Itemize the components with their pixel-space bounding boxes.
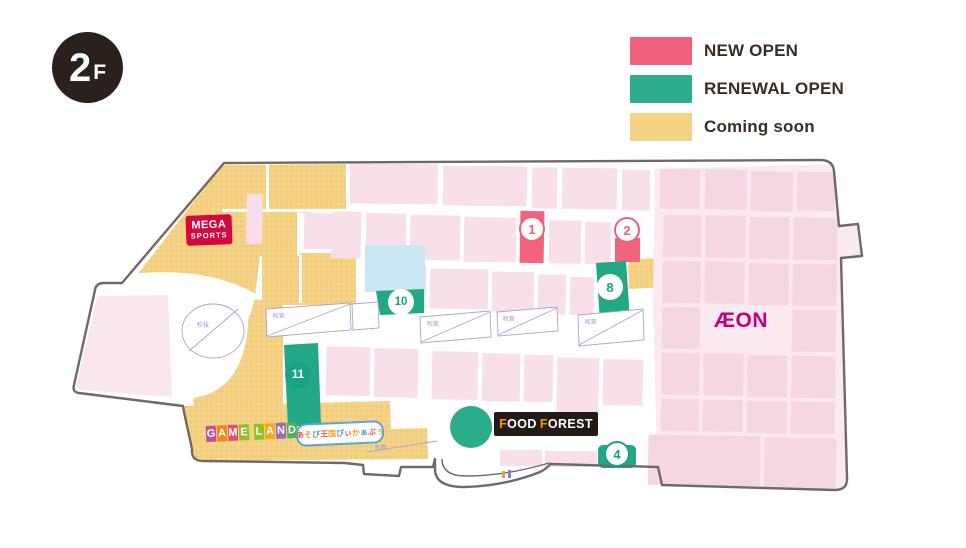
shop-block (797, 172, 836, 212)
shop-block (791, 402, 835, 435)
shop-block (492, 272, 535, 313)
shop-block (443, 165, 527, 206)
shop-block (562, 168, 617, 210)
shop-block (791, 356, 836, 399)
bridge-mark-blue (508, 470, 511, 478)
floor-map-page: 吹抜 吹抜 吹抜 吹抜 吹抜 吹抜 2 F NEW OPEN RENEWAL O… (0, 0, 966, 548)
bridge-mark-orange (502, 471, 505, 478)
legend-item-renewal-open: RENEWAL OPEN (630, 75, 844, 103)
void-label: 吹抜 (197, 321, 209, 329)
shop-block (350, 163, 438, 204)
game-land-letter: M (228, 425, 239, 441)
gold-grid-line (266, 164, 269, 211)
shop-block (747, 401, 787, 434)
shop-block (703, 353, 744, 396)
mega-sports-logo[interactable]: MEGA SPORTS (185, 214, 232, 246)
escalator-box-small (352, 302, 379, 330)
shop-block (570, 277, 595, 315)
marker-4[interactable]: 4 (604, 441, 630, 467)
shop-block (246, 194, 263, 244)
shop-block (662, 261, 701, 304)
shop-block (532, 167, 557, 208)
gold-grid-line (299, 255, 302, 303)
area-coming-soon-mid-block[interactable] (262, 253, 356, 305)
legend-swatch-coming-soon (630, 113, 692, 141)
shop-band-top (350, 163, 650, 210)
shop-block (524, 355, 554, 402)
food-court-circle[interactable] (450, 406, 492, 448)
food-forest-logo[interactable]: FOODFOREST (494, 412, 598, 436)
shop-block (662, 307, 701, 350)
shop-block (464, 217, 517, 263)
marker-1[interactable]: 1 (519, 216, 545, 242)
floor-suffix: F (93, 62, 106, 83)
shop-block (663, 215, 702, 258)
shop-block (764, 437, 837, 488)
shop-block (660, 169, 701, 210)
shop-block (304, 213, 345, 250)
shop-block (747, 355, 788, 398)
marker-2[interactable]: 2 (614, 217, 640, 243)
legend-swatch-renewal-open (630, 75, 692, 103)
shop-block (792, 264, 837, 307)
asobi-char: ぅ (376, 428, 384, 436)
marker-8[interactable]: 8 (597, 274, 623, 300)
shop-block (622, 169, 650, 210)
shop-block (430, 268, 489, 309)
shop-block (326, 346, 371, 396)
shop-block (751, 171, 794, 212)
food-forest-f2: F (540, 417, 548, 431)
game-land-letter: G (206, 426, 217, 442)
shop-block (585, 222, 612, 264)
marker-11[interactable]: 11 (285, 362, 311, 388)
gold-grid-line (222, 209, 346, 212)
legend-label-new-open: NEW OPEN (704, 41, 798, 61)
shop-block (704, 261, 745, 304)
shop-block (500, 450, 542, 466)
shop-block (661, 399, 699, 432)
asobi-oukoku-logo[interactable]: あ そ び 王 国 ぴ ぃ か ぁ ぶ ぅ (296, 420, 385, 447)
gold-grid-line (297, 212, 300, 256)
shop-block (374, 348, 419, 398)
aeon-logo[interactable]: ÆON (703, 309, 779, 333)
food-forest-ood: OOD (507, 417, 537, 431)
floor-number: 2 (69, 48, 91, 88)
floor-badge: 2 F (52, 32, 123, 103)
water-feature-blue (365, 245, 425, 292)
shop-block (749, 217, 790, 260)
legend-label-coming-soon: Coming soon (704, 117, 815, 137)
shop-block (705, 169, 748, 210)
shop-block (648, 435, 761, 487)
game-land-letter: E (239, 424, 250, 440)
marker-10[interactable]: 10 (388, 289, 414, 315)
game-land-letter: A (217, 425, 228, 441)
food-forest-orest: OREST (548, 417, 593, 431)
legend-label-renewal-open: RENEWAL OPEN (704, 79, 844, 99)
legend-item-coming-soon: Coming soon (630, 113, 844, 141)
legend: NEW OPEN RENEWAL OPEN Coming soon (630, 37, 844, 151)
shop-block (432, 351, 479, 400)
game-land-letter: L (254, 423, 265, 439)
shop-block (792, 310, 837, 353)
shop-block (549, 220, 582, 264)
game-land-letter: A (265, 423, 276, 439)
food-forest-f1: F (499, 417, 507, 431)
shop-block (661, 353, 700, 396)
mega-sports-line2: SPORTS (191, 232, 228, 241)
shop-block (793, 218, 838, 261)
shop-block (748, 263, 789, 306)
legend-item-new-open: NEW OPEN (630, 37, 844, 65)
shop-block (482, 353, 521, 402)
shop-block (602, 359, 643, 406)
game-land-letter: N (276, 423, 287, 439)
shop-block (705, 215, 746, 258)
shop-block (703, 399, 743, 432)
legend-swatch-new-open (630, 37, 692, 65)
